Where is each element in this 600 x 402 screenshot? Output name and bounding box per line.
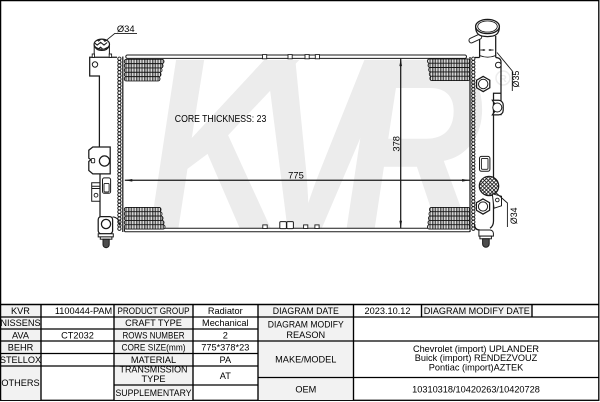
svg-text:775: 775: [288, 169, 304, 180]
svg-text:10310318/10420263/10420728: 10310318/10420263/10420728: [412, 384, 540, 394]
svg-text:Radiator: Radiator: [208, 306, 243, 316]
svg-text:Ø35: Ø35: [511, 71, 521, 88]
svg-text:Ø34: Ø34: [509, 207, 519, 224]
svg-text:KVR: KVR: [11, 306, 30, 316]
svg-text:ROWS NUMBER: ROWS NUMBER: [123, 330, 185, 340]
svg-text:CORE SIZE(mm): CORE SIZE(mm): [122, 343, 186, 353]
svg-text:Pontiac (import)AZTEK: Pontiac (import)AZTEK: [429, 362, 524, 372]
svg-text:OEM: OEM: [295, 384, 316, 394]
svg-text:BEHR: BEHR: [8, 343, 34, 353]
svg-text:AT: AT: [220, 371, 231, 381]
svg-text:CRAFT TYPE: CRAFT TYPE: [125, 318, 182, 328]
svg-text:KVR: KVR: [147, 6, 483, 286]
svg-text:TYPE: TYPE: [142, 374, 166, 384]
svg-text:PA: PA: [220, 355, 232, 365]
svg-text:TRANSMISSION: TRANSMISSION: [120, 365, 188, 375]
svg-text:OTHERS: OTHERS: [1, 378, 39, 388]
svg-text:Ø34: Ø34: [117, 23, 135, 34]
svg-text:AVA: AVA: [12, 330, 30, 340]
svg-text:SUPPLEMENTARY: SUPPLEMENTARY: [116, 388, 192, 398]
svg-text:PRODUCT GROUP: PRODUCT GROUP: [118, 306, 190, 316]
svg-text:DIAGRAM DATE: DIAGRAM DATE: [273, 306, 339, 316]
svg-text:MAKE/MODEL: MAKE/MODEL: [275, 355, 336, 365]
svg-text:STELLOX: STELLOX: [0, 355, 41, 365]
svg-text:CORE THICKNESS: 23: CORE THICKNESS: 23: [175, 114, 267, 125]
svg-text:775*378*23: 775*378*23: [201, 343, 249, 353]
svg-text:378: 378: [390, 136, 401, 152]
svg-text:Mechanical: Mechanical: [202, 318, 248, 328]
svg-text:2023.10.12: 2023.10.12: [365, 306, 411, 316]
svg-text:NISSENS: NISSENS: [0, 318, 40, 328]
svg-text:2: 2: [223, 330, 228, 340]
svg-text:REASON: REASON: [286, 330, 325, 340]
svg-text:CT2032: CT2032: [61, 330, 94, 340]
svg-text:DIAGRAM MODIFY DATE: DIAGRAM MODIFY DATE: [424, 306, 530, 316]
svg-text:DIAGRAM MODIFY: DIAGRAM MODIFY: [268, 319, 344, 329]
svg-text:1100444-PAM: 1100444-PAM: [55, 306, 112, 316]
